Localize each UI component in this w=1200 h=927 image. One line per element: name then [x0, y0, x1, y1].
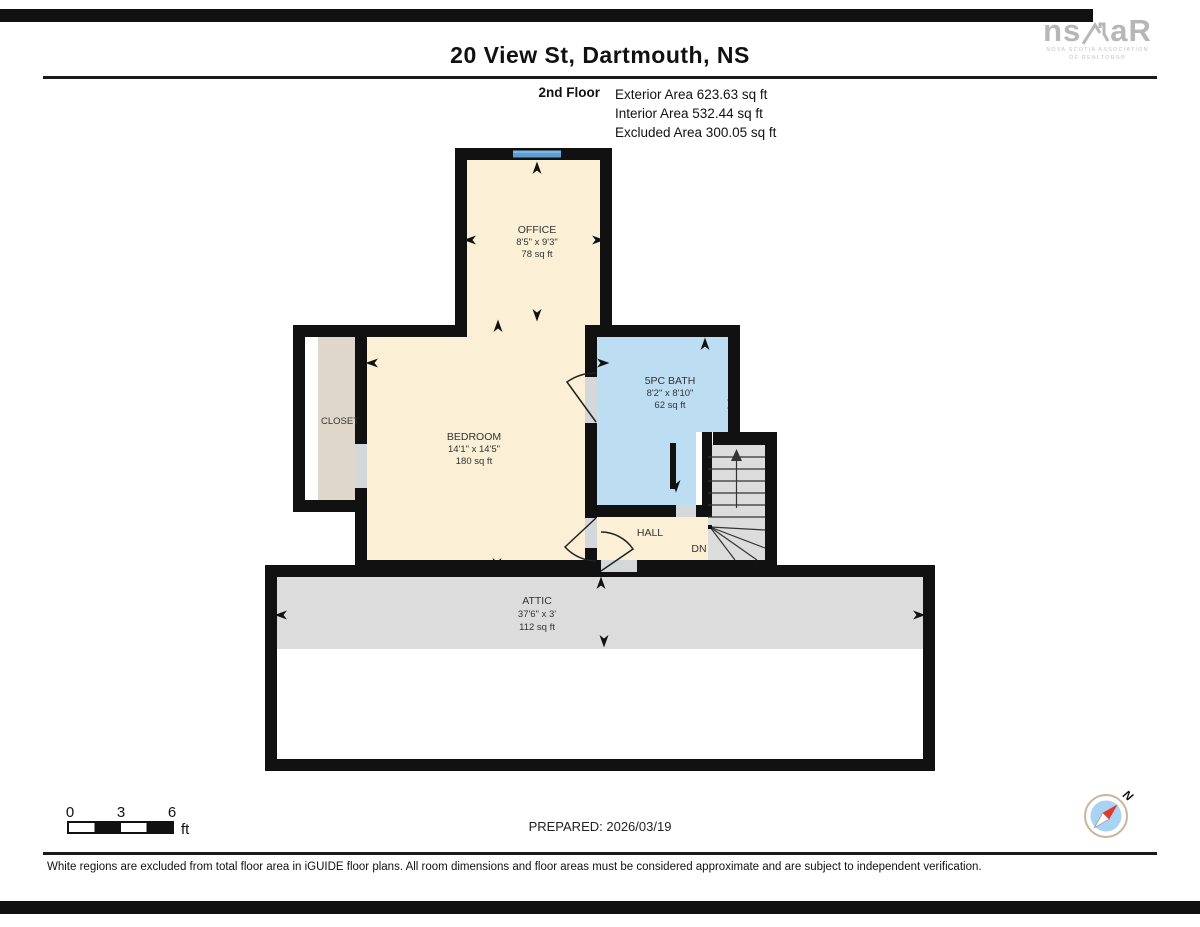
prepared-date: PREPARED: 2026/03/19 [0, 819, 1200, 834]
attic-label: ATTIC [522, 595, 552, 607]
hall-label: HALL [637, 527, 663, 539]
floorplan-drawing: OFFICE 8'5" x 9'3" 78 sq ft BEDROOM 14'1… [0, 0, 1200, 927]
bottom-black-bar [0, 901, 1200, 914]
closet-label: CLOSET [321, 416, 359, 427]
room-office-bedroom-floor [367, 160, 600, 560]
bedroom-area: 180 sq ft [456, 456, 493, 467]
footer-divider [43, 852, 1157, 855]
office-area: 78 sq ft [521, 249, 553, 260]
disclaimer-text: White regions are excluded from total fl… [47, 861, 1157, 873]
office-label: OFFICE [518, 224, 557, 236]
bath-area: 62 sq ft [654, 400, 686, 411]
floorplan-page: ns aR NOVA SCOTIA ASSOCIATION OF REALTOR… [0, 0, 1200, 927]
room-attic-floor [277, 577, 923, 649]
bedroom-dims: 14'1" x 14'5" [448, 444, 500, 455]
office-dims: 8'5" x 9'3" [516, 237, 558, 248]
attic-dims: 37'6" x 3' [518, 609, 556, 620]
compass-north-label: N [1120, 787, 1136, 804]
bath-label: 5PC BATH [645, 375, 696, 387]
attic-excluded-area [277, 649, 923, 759]
bedroom-label: BEDROOM [447, 431, 501, 443]
bath-dims: 8'2" x 8'10" [647, 388, 694, 399]
attic-area: 112 sq ft [519, 622, 555, 633]
window [513, 148, 561, 160]
down-label: DN [691, 543, 706, 555]
